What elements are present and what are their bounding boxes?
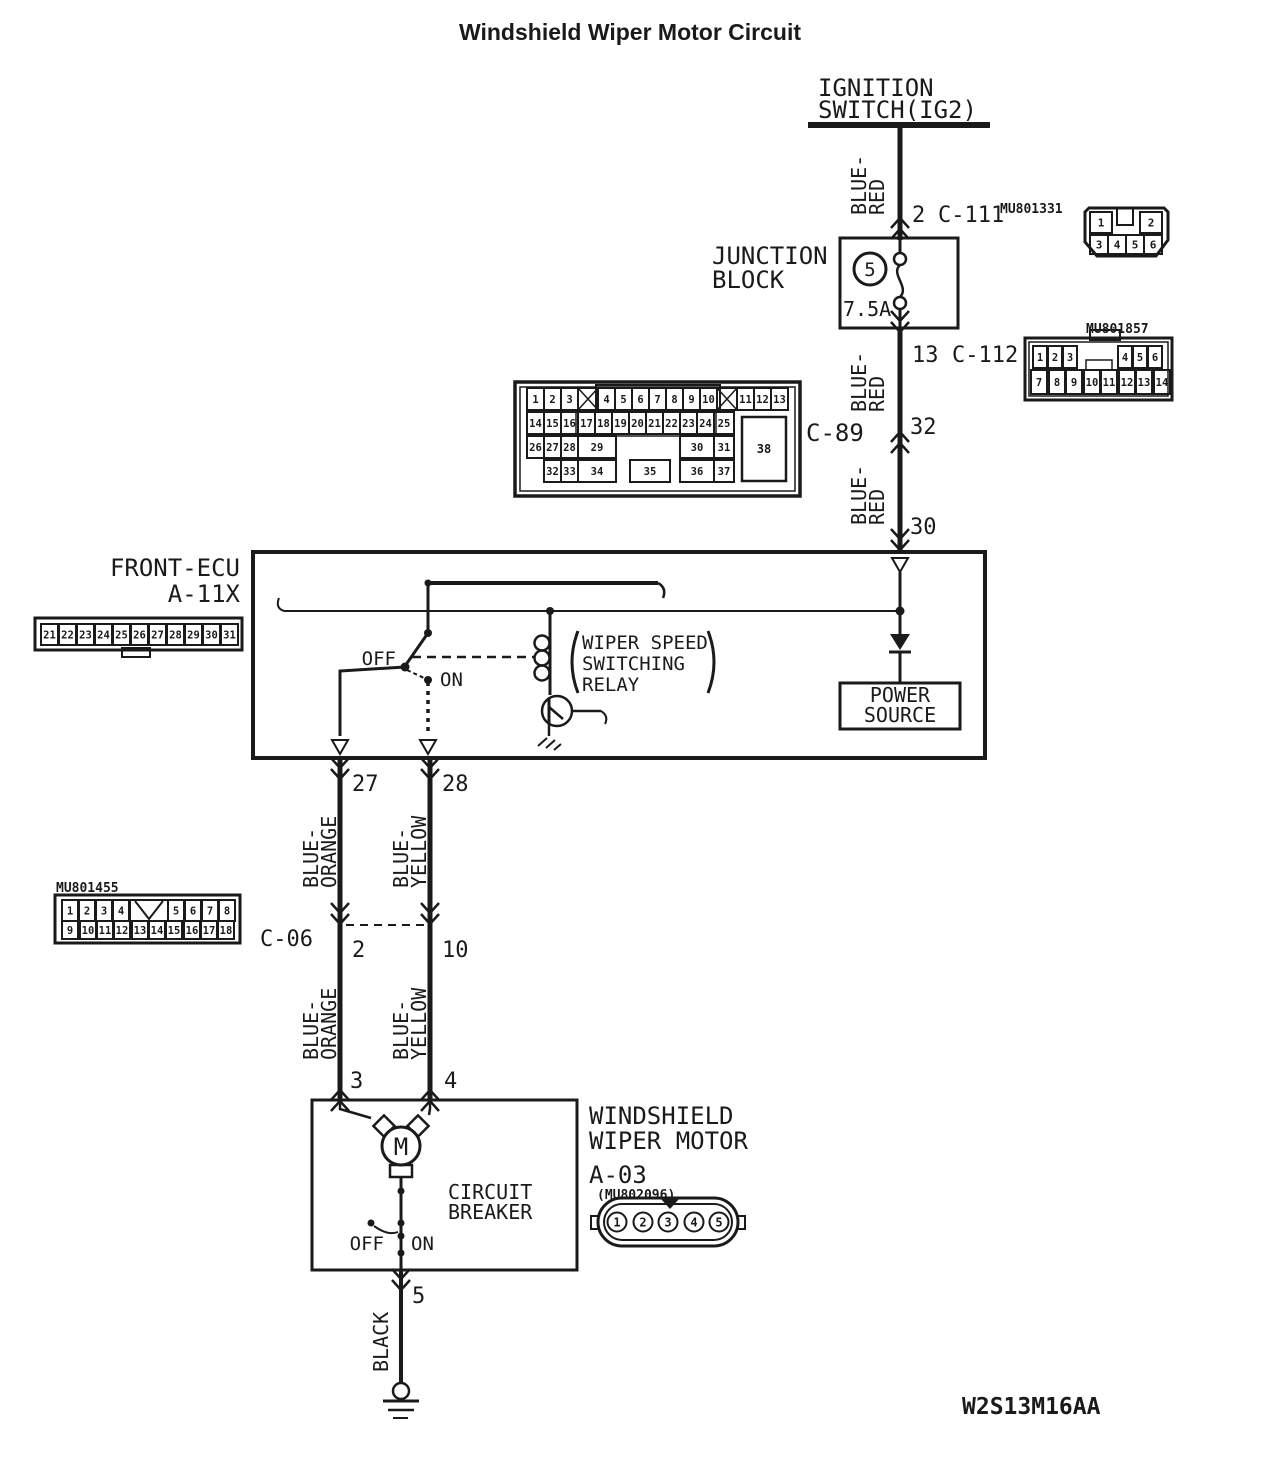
wiring-diagram-page: Windshield Wiper Motor Circuit IGNITION …: [0, 0, 1264, 1466]
c89-name: C-89: [806, 419, 864, 447]
ecu-pin27-label: 27: [352, 772, 379, 797]
ground-terminal-circle: [393, 1383, 409, 1399]
pin-number: 10: [1086, 377, 1099, 389]
pin-number: 13: [773, 394, 786, 406]
motor-pin4-label: 4: [444, 1069, 457, 1094]
wire-break-icon: [601, 711, 606, 724]
connector-mu801455: MU801455 12345678 9101112131415161718: [55, 881, 240, 943]
breaker-off-label: OFF: [350, 1233, 384, 1255]
pin-number: 5: [620, 394, 626, 406]
wiper-switch: OFF ON: [340, 580, 535, 737]
ground-icon: [383, 1383, 419, 1418]
relay-label-line2: SWITCHING: [582, 653, 685, 675]
switch-off-output-line: [340, 667, 405, 736]
motor-name-line2: WIPER MOTOR: [589, 1127, 748, 1155]
pin-number: 1: [1037, 352, 1043, 364]
motor-brush-icon: [407, 1115, 428, 1136]
pin-number: 31: [718, 442, 731, 454]
junction-dot: [398, 1188, 405, 1195]
pin-number: 36: [691, 466, 704, 478]
ground-hatch-icon: [538, 738, 561, 750]
relay-label-line1: WIPER SPEED: [582, 632, 708, 654]
pin-number: 12: [116, 925, 129, 937]
pin-number: 30: [205, 629, 218, 641]
switch-on-label: ON: [440, 669, 463, 691]
pin-number: 3: [566, 394, 572, 406]
pin-number: 12: [756, 394, 769, 406]
pin-number: 24: [97, 629, 110, 641]
c06-pin-right: 10: [442, 938, 469, 963]
pin-number: 10: [82, 925, 95, 937]
pin-number: 1: [613, 1215, 620, 1229]
pin-number: 3: [664, 1215, 671, 1229]
pin-number: 14: [1156, 377, 1169, 389]
ecu-name: FRONT-ECU: [110, 554, 240, 582]
input-arrow-icon: [892, 558, 908, 572]
ecu-pin28-label: 28: [442, 772, 469, 797]
pin-number: 26: [529, 442, 542, 454]
pin-number: 2: [84, 905, 90, 917]
fuse-rating: 7.5A: [843, 297, 891, 321]
output-arrow-icon: [332, 740, 348, 754]
pin-number: 23: [79, 629, 92, 641]
pin-number: 12: [1121, 377, 1134, 389]
pin-number: 4: [1122, 352, 1128, 364]
motor-letter: M: [394, 1133, 408, 1161]
pin-number: 2: [639, 1215, 646, 1229]
connector-notch: [1117, 208, 1133, 225]
pin-number: 8: [671, 394, 677, 406]
pin-number: 31: [223, 629, 236, 641]
relay-coil-icon: [535, 636, 550, 651]
fuse-number: 5: [864, 259, 875, 281]
connector-mu802096: 12345: [591, 1198, 745, 1246]
diagram-code: W2S13M16AA: [962, 1394, 1101, 1420]
pin-number: 11: [1103, 377, 1116, 389]
c111-pin: 2: [912, 203, 925, 228]
pin-number: 11: [739, 394, 752, 406]
motor-pedestal: [390, 1165, 412, 1177]
pin-number: 9: [67, 925, 73, 937]
connector-mu801331: 12 3456: [1085, 208, 1168, 256]
motor-brush-icon: [373, 1115, 394, 1136]
pin-number: 4: [118, 905, 124, 917]
pin-number: 15: [546, 418, 559, 430]
breaker-on-label: ON: [411, 1233, 434, 1255]
power-source-line2: SOURCE: [864, 703, 936, 727]
wire-label-blue-yellow: YELLOW: [407, 815, 431, 888]
pin-number: 16: [186, 925, 199, 937]
page-title: Windshield Wiper Motor Circuit: [459, 19, 801, 45]
pin-number: 1: [67, 905, 73, 917]
pin-number: 4: [1114, 238, 1121, 251]
pin-number: 29: [187, 629, 200, 641]
pin-number: 22: [61, 629, 74, 641]
pin-number: 17: [580, 418, 593, 430]
transistor-emitter-arm: [549, 707, 563, 719]
pin-number: 14: [529, 418, 542, 430]
pin-number: 11: [99, 925, 112, 937]
pin-number: 5: [173, 905, 179, 917]
pin-number: 26: [133, 629, 146, 641]
motor-ref: A-03: [589, 1161, 647, 1189]
connector-c89: 12345678910111213 1415161718192021222324…: [515, 382, 800, 496]
pin-number: 5: [1137, 352, 1143, 364]
pin-number: 3: [1096, 238, 1103, 251]
pin-number: 25: [115, 629, 128, 641]
pin-number: 13: [134, 925, 147, 937]
connector-notch: [1086, 360, 1112, 370]
pin-number: 10: [702, 394, 715, 406]
pin-number: 9: [1071, 377, 1077, 389]
c111-name: C-111: [938, 203, 1004, 228]
pin-number: 8: [224, 905, 230, 917]
pin-number: 6: [190, 905, 196, 917]
motor-name-line1: WINDSHIELD: [589, 1102, 734, 1130]
pin-number: 2: [549, 394, 555, 406]
pin-number: 2: [1148, 216, 1155, 229]
pin-number: 15: [168, 925, 181, 937]
motor-feed-line: [340, 1100, 371, 1118]
junction-dot: [398, 1250, 405, 1257]
pin-number: 5: [715, 1215, 722, 1229]
pin-number: 34: [591, 466, 604, 478]
pin-number: 7: [207, 905, 213, 917]
pin-number: 28: [563, 442, 576, 454]
wire-label-blue-yellow: YELLOW: [407, 987, 431, 1060]
wire-break-icon: [658, 583, 664, 598]
diode-icon: [890, 634, 910, 650]
breaker-contact-dot: [398, 1233, 405, 1240]
c89-pin-upper: 32: [910, 415, 937, 440]
windshield-wiper-motor: M OFF ON CIRCUIT BREAKER: [312, 1090, 577, 1270]
paren-right-icon: [708, 631, 714, 693]
ecu-ref: A-11X: [168, 580, 241, 608]
pin-number: 21: [43, 629, 56, 641]
c111-part-number: MU801331: [1000, 202, 1063, 217]
c06-pin-left: 2: [352, 938, 365, 963]
transistor-icon: [538, 696, 606, 750]
pin-number: 35: [644, 466, 657, 478]
pin-number: 25: [718, 418, 731, 430]
junction-dot: [425, 580, 432, 587]
pin-number: 19: [614, 418, 627, 430]
wire-label-blue-red: RED: [865, 376, 889, 412]
pin-number: 21: [648, 418, 661, 430]
fuse-terminal-bottom-icon: [894, 297, 906, 309]
pin-number: 24: [699, 418, 712, 430]
output-arrow-icon: [420, 740, 436, 754]
pin-number: 37: [718, 466, 731, 478]
pin-number: 16: [563, 418, 576, 430]
breaker-off-dot: [368, 1220, 375, 1227]
pin-number: 13: [1138, 377, 1151, 389]
pin-number: 9: [688, 394, 694, 406]
c06-name: C-06: [260, 927, 313, 952]
pin-number: 1: [1098, 216, 1105, 229]
connector-a11x-strip: 2122232425262728293031: [35, 618, 242, 657]
pin-number: 33: [563, 466, 576, 478]
switch-on-link-dashed: [407, 670, 424, 678]
windshield-wiper-circuit-diagram: Windshield Wiper Motor Circuit IGNITION …: [0, 0, 1264, 1466]
fuse-element-icon: [897, 265, 903, 297]
pin-number: 32: [546, 466, 559, 478]
motor-pin3-label: 3: [350, 1069, 363, 1094]
notch-v-icon: [135, 901, 163, 919]
c112-name: C-112: [952, 343, 1018, 368]
switch-blade: [405, 633, 428, 666]
pin-number: 14: [151, 925, 164, 937]
pin-number: 8: [1054, 377, 1060, 389]
wire-label-blue-orange: ORANGE: [317, 816, 341, 888]
pin-number: 22: [665, 418, 678, 430]
pin-number: 27: [546, 442, 559, 454]
wire-label-blue-orange: ORANGE: [317, 988, 341, 1060]
pin-number: 3: [1067, 352, 1073, 364]
c112-pin: 13: [912, 343, 939, 368]
breaker-contact-dot: [398, 1220, 405, 1227]
relay-coil-icon: [535, 666, 550, 681]
circuit-breaker-label-line2: BREAKER: [448, 1200, 533, 1224]
pin-number: 4: [603, 394, 609, 406]
pin-number: 6: [1150, 238, 1157, 251]
front-ecu: FRONT-ECU A-11X 2122232425262728293031 O…: [35, 552, 985, 758]
pin-number: 7: [654, 394, 660, 406]
fuse-terminal-top-icon: [894, 253, 906, 265]
paren-left-icon: [572, 631, 578, 693]
pin-number: 28: [169, 629, 182, 641]
power-source-branch: POWER SOURCE: [840, 572, 960, 729]
pin-number: 17: [203, 925, 216, 937]
pin-number: 1: [532, 394, 538, 406]
pin-number: 23: [682, 418, 695, 430]
pin-number: 18: [597, 418, 610, 430]
pin-number: 29: [591, 442, 604, 454]
pin-number: 27: [151, 629, 164, 641]
pin-number: 6: [1152, 352, 1158, 364]
pin-number: 20: [631, 418, 644, 430]
ignition-switch: IGNITION SWITCH(IG2): [808, 74, 990, 125]
wire-label-blue-red: RED: [865, 489, 889, 525]
connector-mu801857: 123456 7891011121314: [1025, 330, 1172, 400]
wire-label-black: BLACK: [369, 1312, 393, 1372]
pin-number: 18: [220, 925, 233, 937]
pin-number: 6: [637, 394, 643, 406]
pin-number: 7: [1036, 377, 1042, 389]
junction-block-label-line2: BLOCK: [712, 266, 785, 294]
pin-number: 5: [1132, 238, 1139, 251]
junction-block: JUNCTION BLOCK 5 7.5A: [712, 238, 958, 328]
pin-number: 38: [757, 442, 771, 456]
pin-number: 3: [101, 905, 107, 917]
ignition-label-line2: SWITCH(IG2): [818, 96, 977, 124]
wire-break-icon: [278, 598, 284, 611]
transistor-circle: [542, 696, 572, 726]
wire-label-blue-red: RED: [865, 179, 889, 215]
pin-number: 4: [690, 1215, 697, 1229]
relay-label-line3: RELAY: [582, 674, 640, 696]
motor-feed-line: [429, 1100, 430, 1115]
motor-pin5-label: 5: [412, 1284, 425, 1309]
c89-pin-lower: 30: [910, 515, 937, 540]
wiper-speed-switching-relay: WIPER SPEED SWITCHING RELAY: [535, 607, 715, 750]
pin-number: 30: [691, 442, 704, 454]
relay-coil-icon: [535, 651, 550, 666]
pin-number: 2: [1052, 352, 1058, 364]
